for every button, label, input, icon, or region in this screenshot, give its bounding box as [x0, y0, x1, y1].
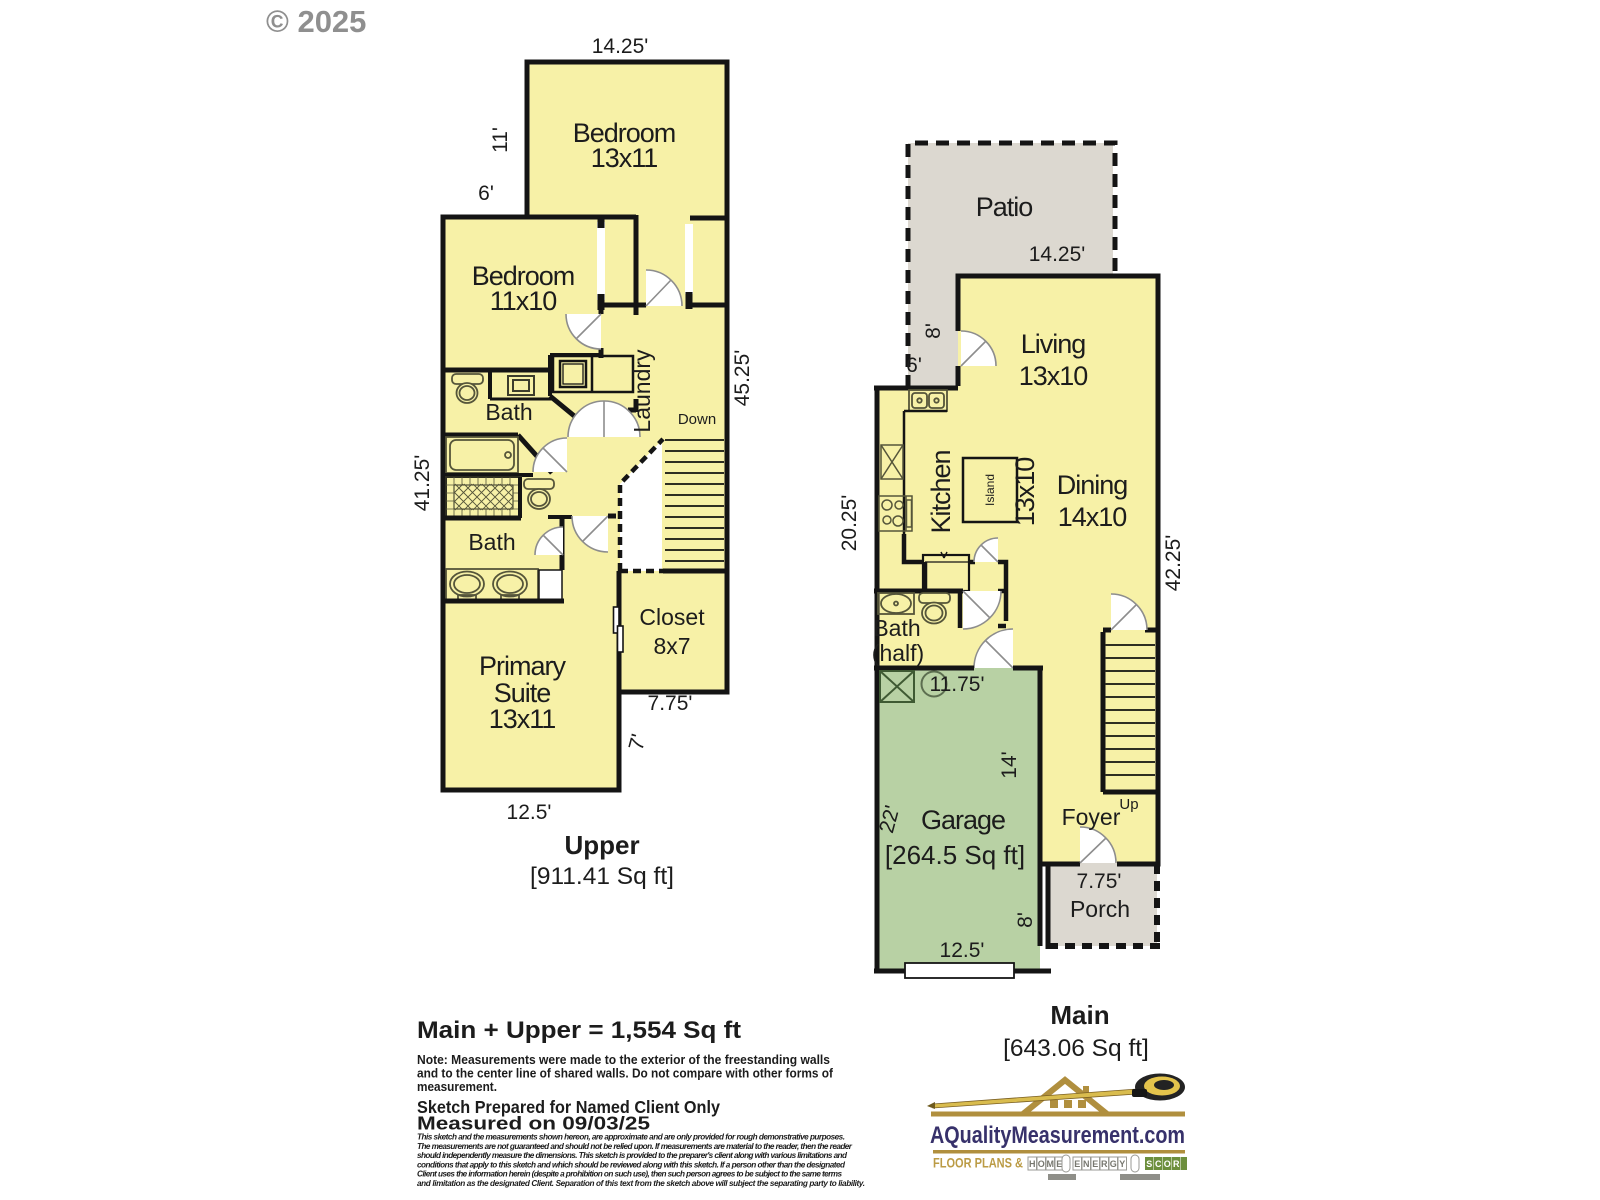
- svg-text:Main: Main: [1050, 1000, 1109, 1030]
- svg-text:[911.41 Sq ft]: [911.41 Sq ft]: [530, 863, 674, 890]
- svg-text:Y: Y: [1119, 1159, 1125, 1169]
- svg-text:Upper: Upper: [564, 830, 639, 860]
- svg-text:The measurements are not guara: The measurements are not guaranteed and …: [417, 1142, 853, 1151]
- svg-text:13x11: 13x11: [489, 704, 556, 734]
- svg-text:Living: Living: [1021, 329, 1086, 359]
- svg-text:14x10: 14x10: [1058, 502, 1127, 532]
- svg-text:20.25': 20.25': [838, 495, 861, 552]
- svg-text:AQualityMeasurement.com: AQualityMeasurement.com: [930, 1122, 1185, 1149]
- svg-text:Dining: Dining: [1057, 470, 1128, 500]
- svg-text:This sketch and the measuremen: This sketch and the measurements shown h…: [417, 1133, 845, 1142]
- svg-text:Measured on 09/03/25: Measured on 09/03/25: [417, 1114, 650, 1134]
- svg-text:© 2025: © 2025: [266, 4, 366, 39]
- svg-text:13x10: 13x10: [1019, 361, 1088, 391]
- svg-text:R: R: [1173, 1159, 1180, 1169]
- svg-text:Foyer: Foyer: [1062, 804, 1121, 830]
- svg-text:8': 8': [1014, 912, 1037, 928]
- svg-text:45.25': 45.25': [731, 350, 754, 407]
- svg-text:O: O: [1164, 1159, 1171, 1169]
- svg-text:O: O: [1038, 1159, 1045, 1169]
- svg-text:14': 14': [998, 751, 1021, 778]
- svg-text:C: C: [1155, 1159, 1162, 1169]
- svg-text:7.75': 7.75': [648, 692, 693, 715]
- svg-text:N: N: [1083, 1159, 1090, 1169]
- svg-text:12.5': 12.5': [507, 801, 552, 824]
- svg-text:G: G: [1110, 1159, 1117, 1169]
- svg-text:E: E: [1056, 1159, 1062, 1169]
- svg-text:11.75': 11.75': [929, 673, 984, 696]
- svg-text:M: M: [1046, 1159, 1054, 1169]
- svg-text:13x11: 13x11: [591, 143, 658, 173]
- svg-text:Primary: Primary: [479, 651, 566, 681]
- svg-text:S: S: [1146, 1159, 1152, 1169]
- svg-text:11': 11': [489, 127, 512, 153]
- svg-text:6': 6': [906, 354, 922, 377]
- svg-text:13x10: 13x10: [1010, 458, 1040, 527]
- svg-text:Patio: Patio: [976, 192, 1033, 222]
- svg-text:Bath: Bath: [873, 615, 920, 641]
- svg-text:Laundry: Laundry: [629, 349, 655, 433]
- svg-text:42.25': 42.25': [1162, 535, 1185, 592]
- svg-text:Main + Upper = 1,554 Sq ft: Main + Upper = 1,554 Sq ft: [417, 1017, 741, 1044]
- svg-text:conditions that apply to this: conditions that apply to this sketch and…: [417, 1160, 846, 1169]
- svg-text:measurement.: measurement.: [417, 1079, 497, 1094]
- svg-text:8': 8': [922, 323, 945, 339]
- svg-text:and limitation as the designat: and limitation as the designated Client.…: [417, 1179, 865, 1188]
- svg-text:12.5': 12.5': [940, 939, 985, 962]
- svg-text:Garage: Garage: [921, 805, 1005, 835]
- svg-text:Up: Up: [1119, 796, 1138, 813]
- svg-text:14.25': 14.25': [592, 35, 649, 58]
- svg-text:[643.06 Sq ft]: [643.06 Sq ft]: [1003, 1035, 1149, 1062]
- svg-text:6': 6': [478, 182, 494, 205]
- svg-text:41.25': 41.25': [411, 455, 434, 512]
- svg-text:Down: Down: [678, 411, 716, 428]
- svg-text:7': 7': [625, 732, 651, 753]
- svg-text:[264.5 Sq ft]: [264.5 Sq ft]: [885, 840, 1025, 870]
- svg-text:Bath: Bath: [485, 399, 532, 425]
- svg-text:Kitchen: Kitchen: [926, 450, 956, 533]
- svg-text:FLOOR PLANS &: FLOOR PLANS &: [933, 1155, 1023, 1171]
- svg-text:8x7: 8x7: [653, 633, 690, 659]
- svg-text:should independently measure t: should independently measure the dimensi…: [417, 1151, 848, 1160]
- svg-text:Porch: Porch: [1070, 896, 1130, 922]
- svg-text:Island: Island: [983, 474, 997, 506]
- svg-text:Closet: Closet: [639, 604, 705, 630]
- svg-text:11x10: 11x10: [490, 286, 557, 316]
- svg-text:Client uses the information he: Client uses the information herein (desp…: [417, 1170, 842, 1179]
- svg-text:7.75': 7.75': [1077, 870, 1122, 893]
- svg-text:R: R: [1101, 1159, 1108, 1169]
- svg-text:14.25': 14.25': [1029, 243, 1086, 266]
- svg-text:E: E: [1092, 1159, 1098, 1169]
- svg-text:E: E: [1074, 1159, 1080, 1169]
- svg-text:Bath: Bath: [468, 529, 515, 555]
- svg-text:(half): (half): [872, 640, 924, 666]
- svg-text:H: H: [1029, 1159, 1036, 1169]
